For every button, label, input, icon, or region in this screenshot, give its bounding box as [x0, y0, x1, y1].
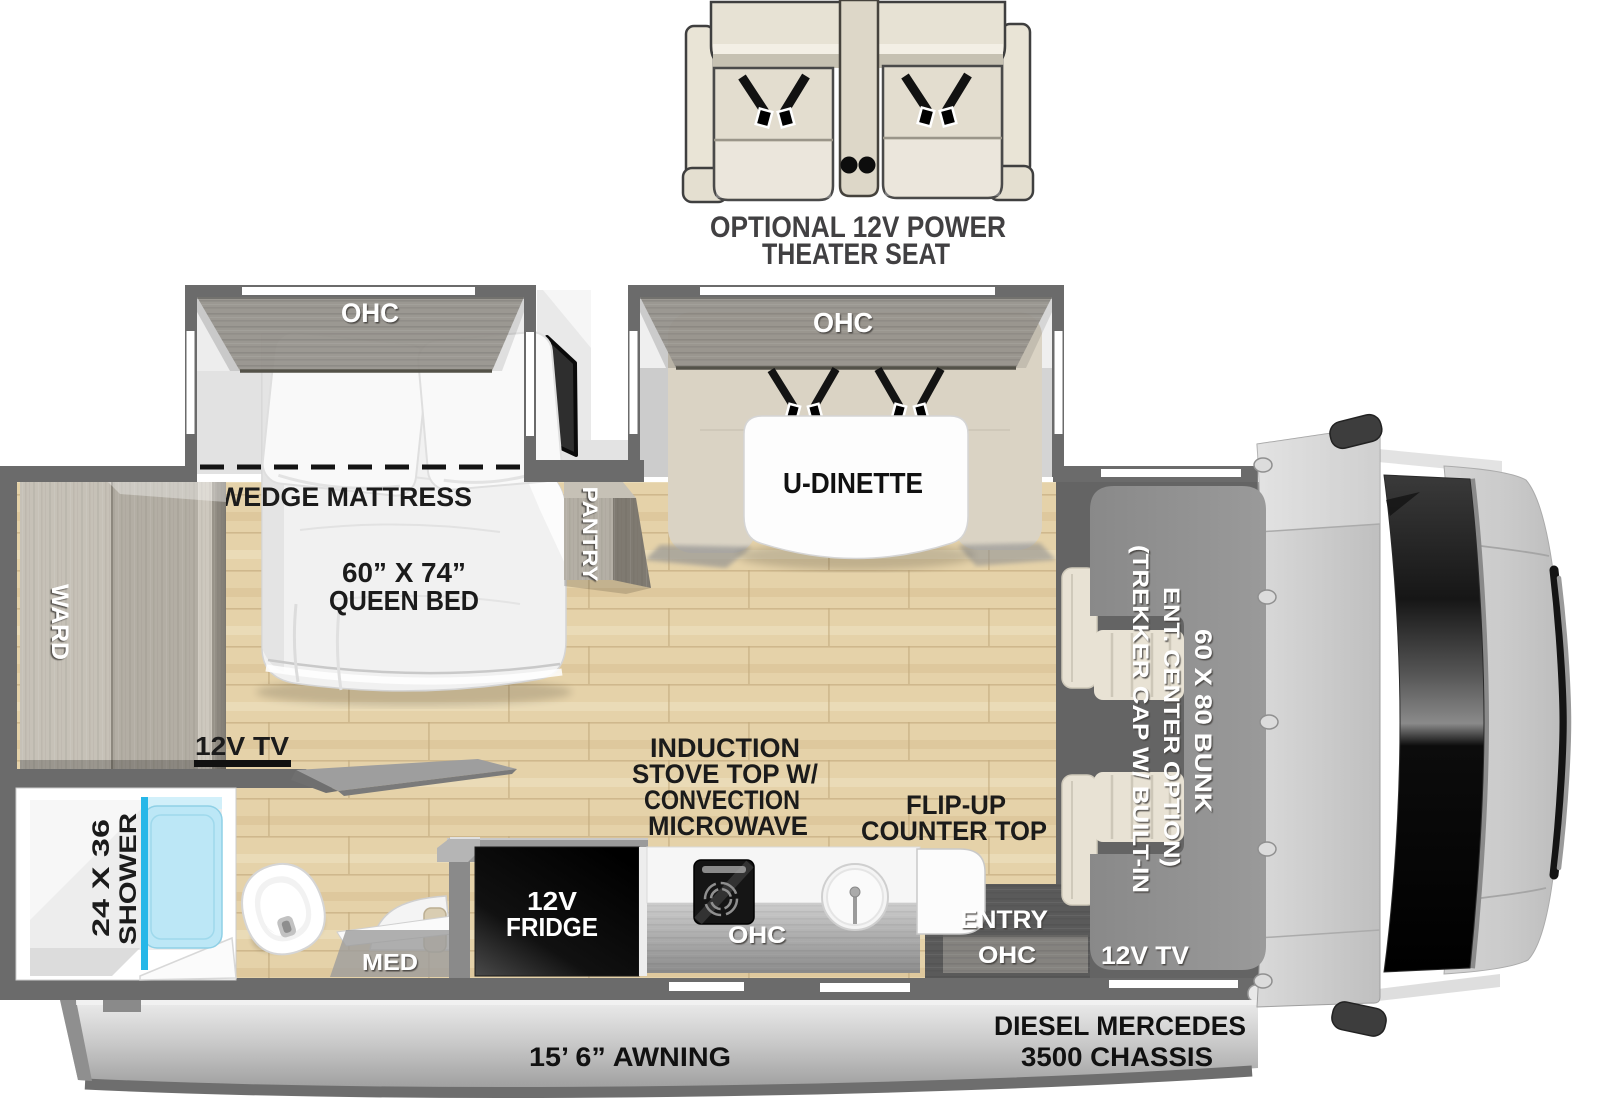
svg-text:ENTRY: ENTRY [960, 906, 1048, 934]
svg-text:ENT. CENTER OPTION): ENT. CENTER OPTION) [1159, 587, 1184, 867]
svg-text:OHC: OHC [813, 307, 873, 338]
svg-text:FRIDGE: FRIDGE [506, 912, 598, 942]
svg-text:OHC: OHC [341, 298, 399, 328]
svg-text:15’ 6” AWNING: 15’ 6” AWNING [529, 1042, 731, 1072]
svg-text:60 X 80 BUNK: 60 X 80 BUNK [1189, 629, 1216, 814]
svg-text:OHC: OHC [728, 922, 786, 949]
svg-text:OHC: OHC [978, 942, 1036, 969]
svg-text:PANTRY: PANTRY [578, 487, 601, 582]
svg-text:WEDGE MATTRESS: WEDGE MATTRESS [218, 482, 472, 512]
svg-text:WARD: WARD [46, 584, 73, 660]
svg-text:MICROWAVE: MICROWAVE [648, 811, 808, 841]
svg-text:60” X 74”: 60” X 74” [342, 557, 466, 588]
svg-text:12V TV: 12V TV [1101, 942, 1189, 970]
svg-text:12V TV: 12V TV [195, 731, 290, 761]
svg-text:DIESEL MERCEDES: DIESEL MERCEDES [994, 1011, 1246, 1041]
svg-text:SHOWER: SHOWER [115, 813, 142, 945]
svg-text:THEATER SEAT: THEATER SEAT [762, 238, 950, 271]
svg-text:3500 CHASSIS: 3500 CHASSIS [1021, 1042, 1213, 1072]
svg-text:U-DINETTE: U-DINETTE [783, 468, 923, 500]
svg-text:24 X 36: 24 X 36 [88, 819, 115, 937]
svg-text:QUEEN BED: QUEEN BED [329, 585, 479, 616]
svg-text:(TREKKER CAP W/ BUILT-IN: (TREKKER CAP W/ BUILT-IN [1128, 545, 1153, 893]
svg-text:COUNTER TOP: COUNTER TOP [861, 816, 1047, 846]
svg-text:MED: MED [362, 949, 418, 975]
